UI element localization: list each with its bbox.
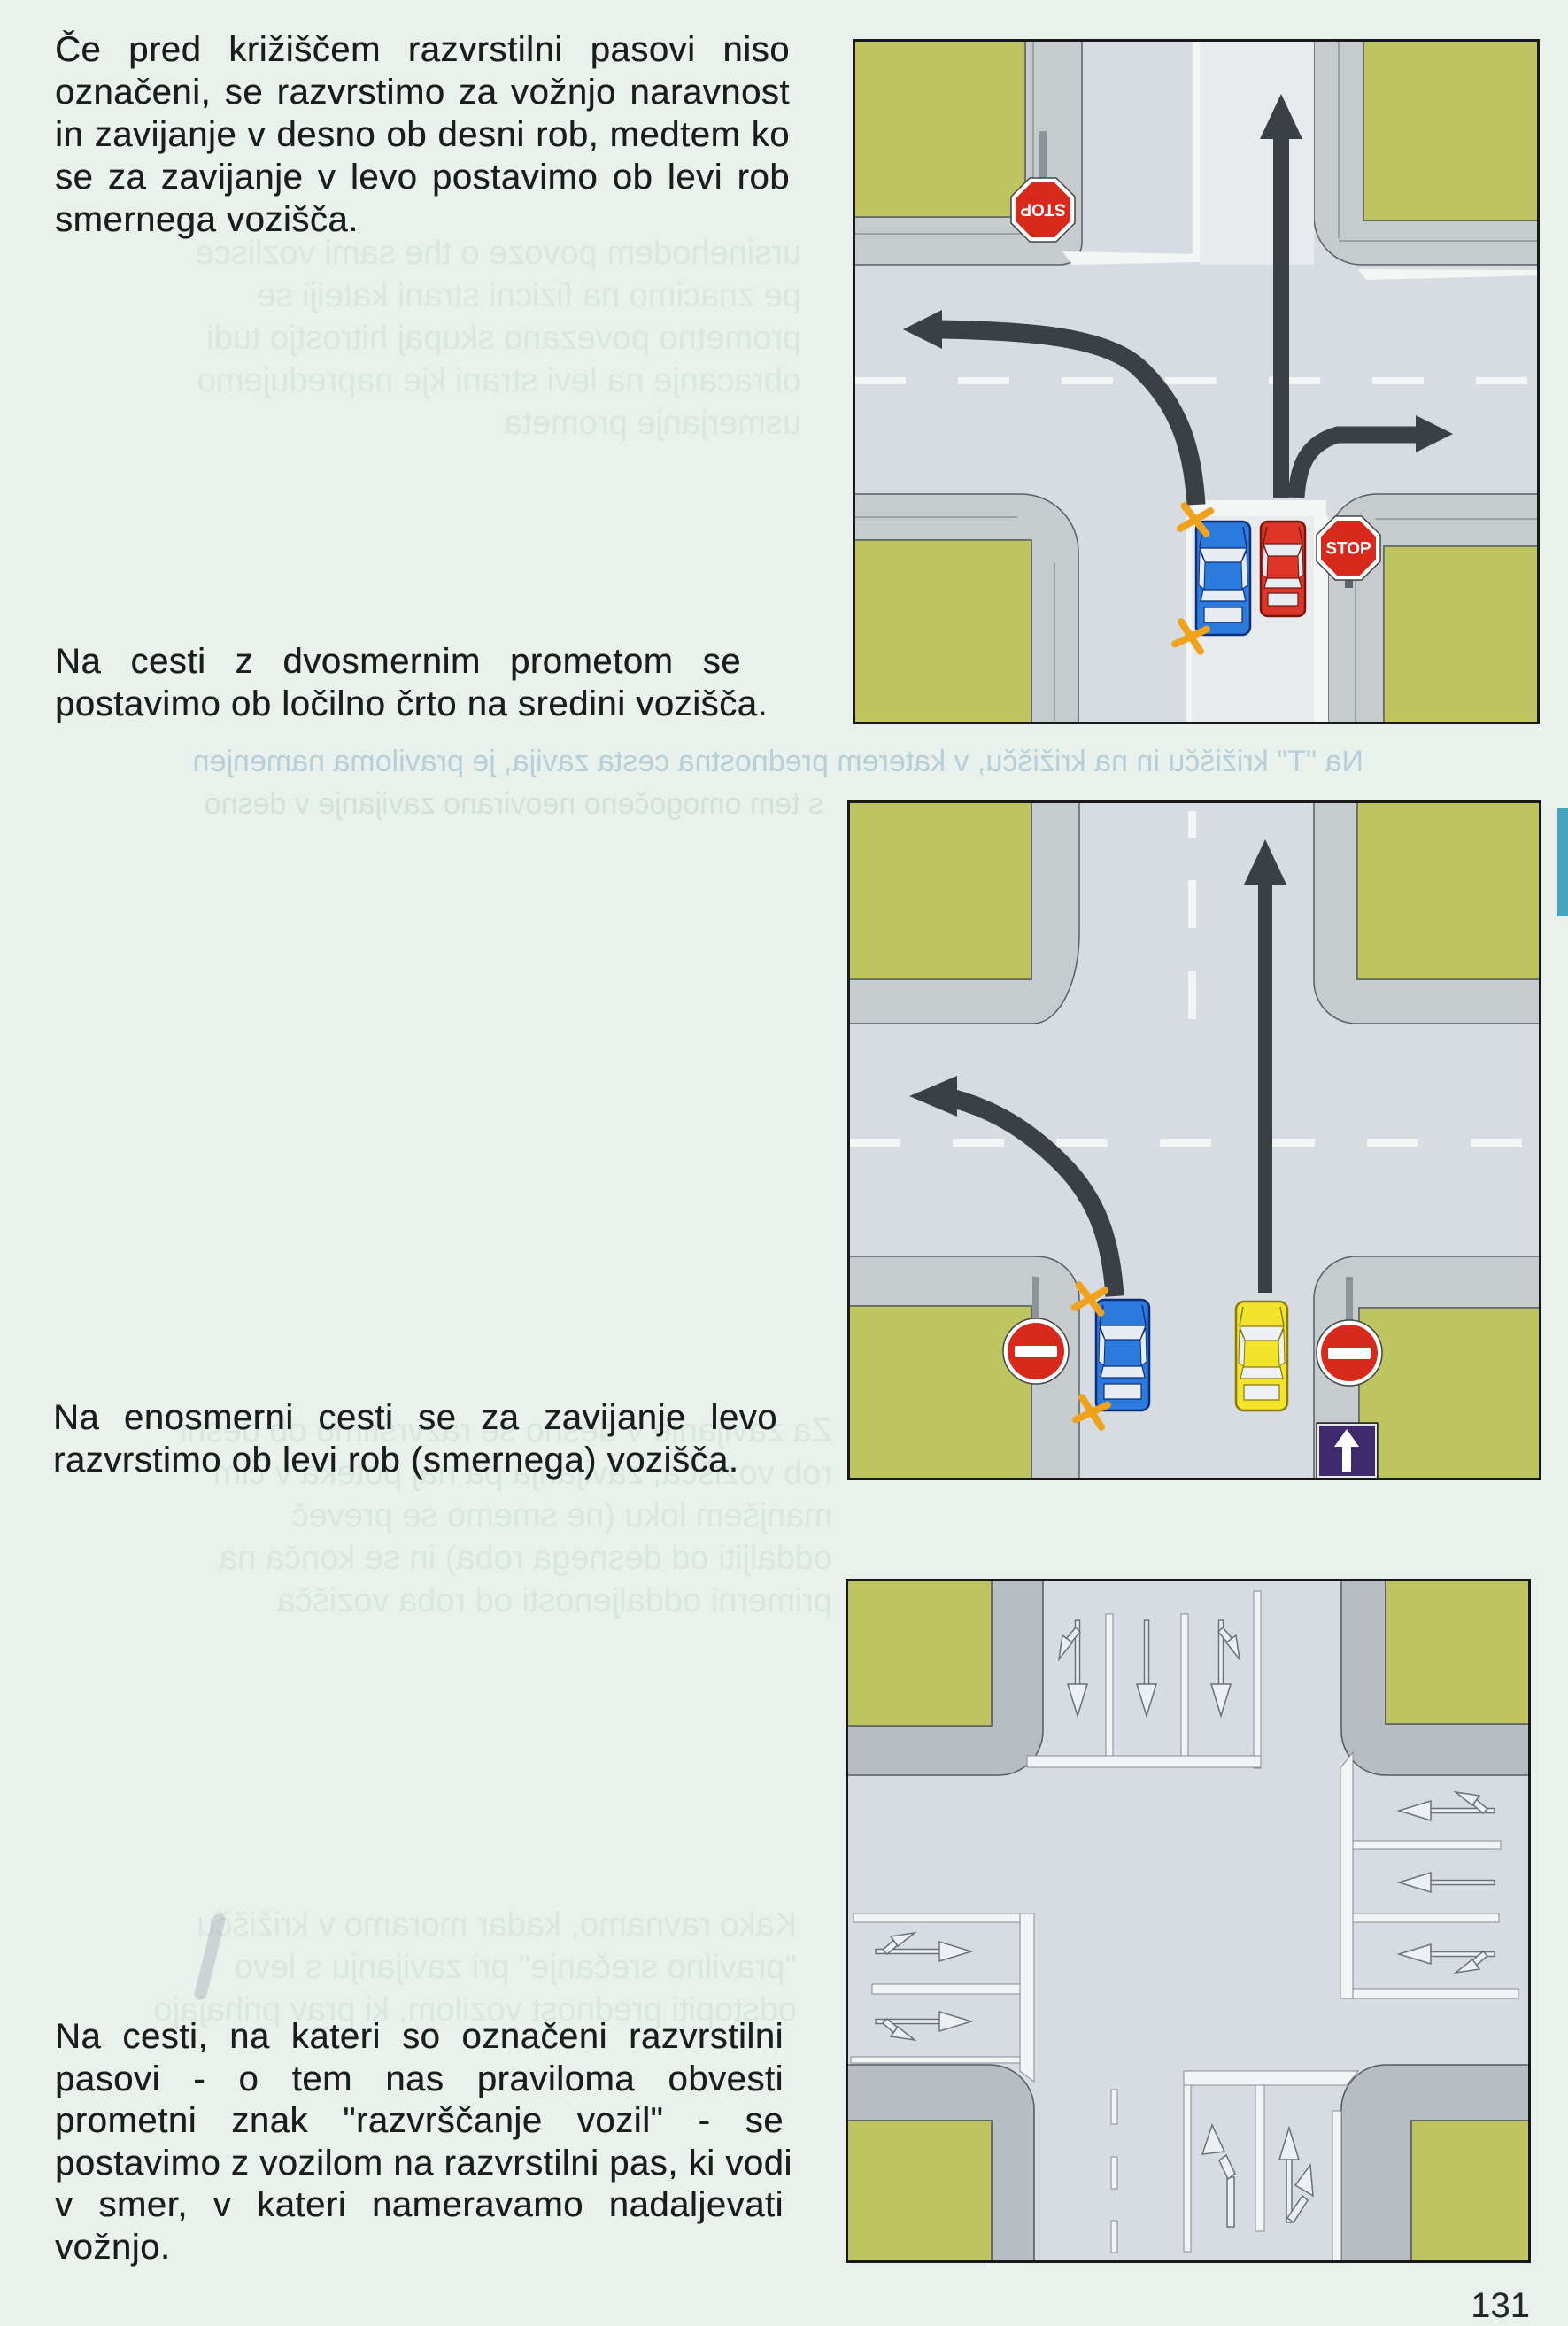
svg-text:STOP: STOP <box>1325 540 1371 559</box>
svg-text:STOP: STOP <box>1020 200 1066 219</box>
